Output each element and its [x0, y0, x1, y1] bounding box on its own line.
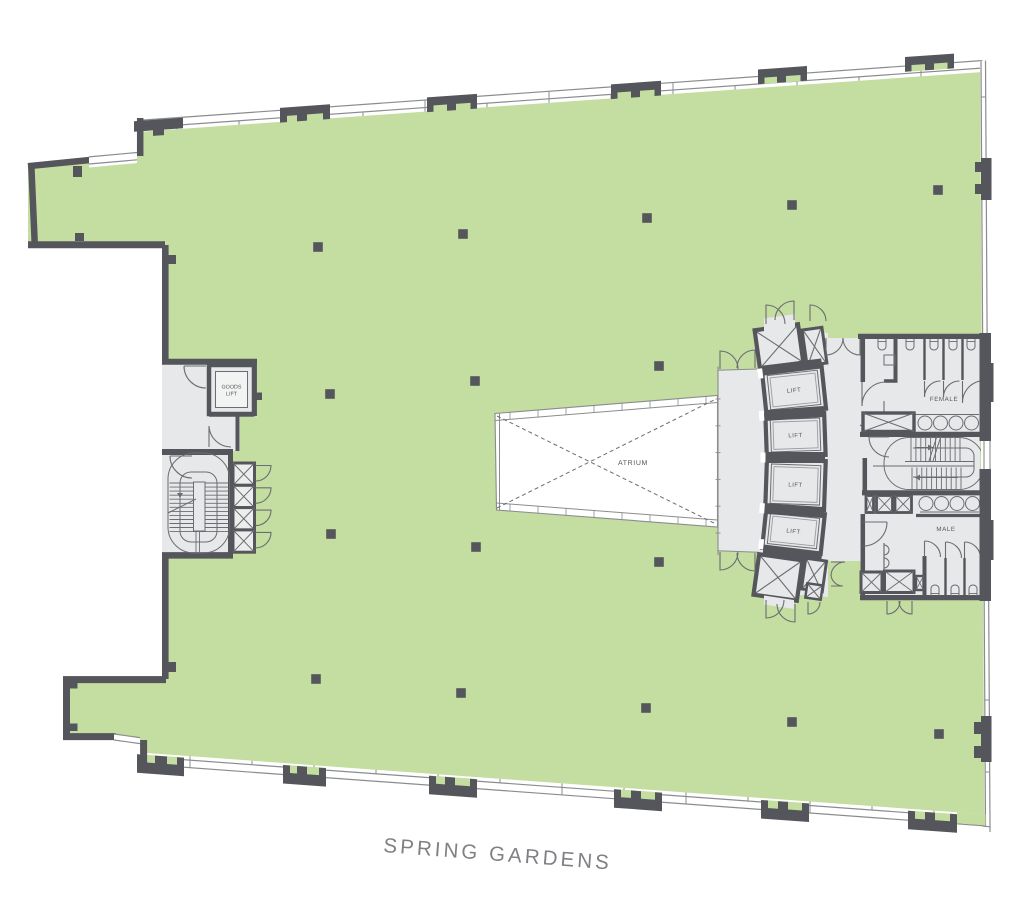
- svg-text:LIFT: LIFT: [788, 432, 803, 439]
- svg-text:ATRIUM: ATRIUM: [618, 460, 648, 467]
- svg-text:LIFT: LIFT: [788, 481, 803, 488]
- svg-text:LIFT: LIFT: [787, 386, 802, 394]
- svg-text:LIFT: LIFT: [226, 392, 238, 398]
- svg-text:MALE: MALE: [936, 526, 955, 533]
- svg-text:GOODS: GOODS: [221, 385, 241, 391]
- svg-text:SPRING GARDENS: SPRING GARDENS: [383, 834, 613, 875]
- svg-text:FEMALE: FEMALE: [930, 396, 958, 403]
- svg-text:LIFT: LIFT: [786, 527, 801, 535]
